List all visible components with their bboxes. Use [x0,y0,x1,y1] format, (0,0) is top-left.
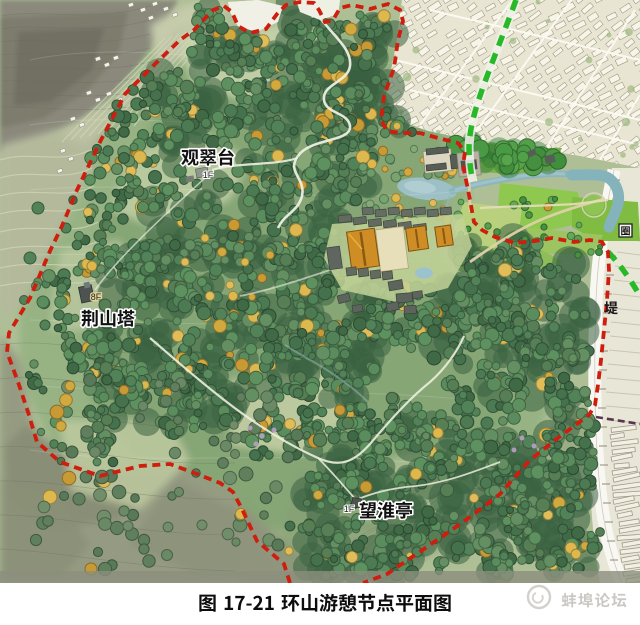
svg-text:1F: 1F [344,504,355,514]
svg-text:8F: 8F [91,292,102,302]
svg-text:1F: 1F [203,170,214,180]
